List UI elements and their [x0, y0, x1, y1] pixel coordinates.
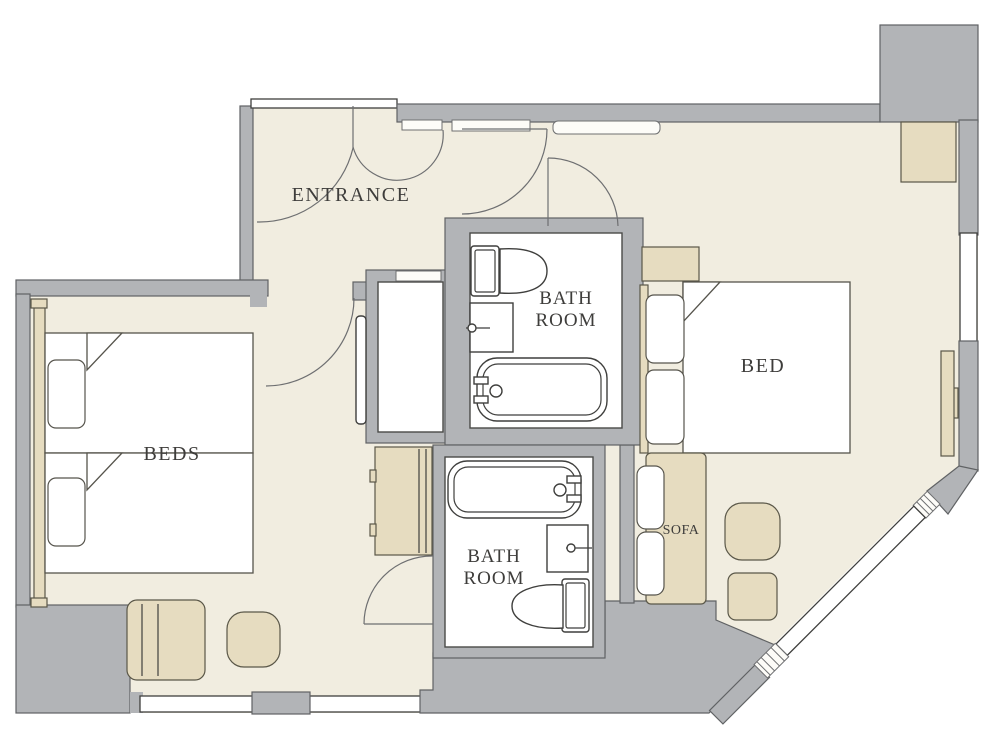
window-right [960, 233, 977, 343]
bathroom-bottom-label-line1: BATH [467, 546, 521, 567]
bathroom-bottom-label-line2: ROOM [463, 568, 524, 589]
headboard-strip [34, 302, 45, 606]
coffee-table-round [725, 503, 780, 560]
wall-top [397, 104, 880, 122]
bathroom-top: BATH ROOM [445, 218, 643, 445]
entrance-label: ENTRANCE [292, 184, 411, 206]
closet-top-recess [396, 271, 441, 281]
tv-board-panel [941, 351, 954, 456]
wall-right-upper [959, 120, 978, 235]
nightstand [642, 247, 699, 281]
wall-pillar [250, 294, 267, 307]
wall-sofa-back [620, 445, 634, 603]
closet-interior [378, 282, 443, 432]
armchair [127, 600, 205, 680]
sofa: SOFA [637, 453, 706, 604]
headboard-cap-bottom [31, 598, 47, 607]
sink-faucet [468, 324, 476, 332]
sofa-cushion [637, 466, 664, 529]
entrance-threshold [251, 99, 397, 108]
bathtub-faucet [554, 484, 566, 496]
wall-right-lower [959, 341, 978, 471]
sink [466, 303, 513, 352]
beds-room-label: BEDS [143, 443, 200, 465]
wall-left [16, 294, 30, 607]
side-table [227, 612, 280, 667]
closet [356, 270, 458, 443]
sink [547, 525, 592, 572]
bathtub-faucet [490, 385, 502, 397]
bathtub-tap-2 [474, 396, 488, 403]
floor-plan-canvas: BATH ROOM BATH ROOM [0, 0, 1000, 750]
wall-entry-left-column [240, 106, 253, 282]
armchair-body [127, 600, 205, 680]
ceiling-vent [553, 121, 660, 134]
cabinet-knob [370, 470, 376, 482]
bathtub [474, 358, 607, 421]
bathtub [448, 461, 581, 518]
headboard-cap-top [31, 299, 47, 308]
cabinet-knob [370, 524, 376, 536]
pillow [48, 360, 85, 428]
bathroom-top-label-line2: ROOM [535, 310, 596, 331]
bathtub-tap-1 [474, 377, 488, 384]
wall-bottom-left-block [16, 605, 130, 713]
bathtub-tap-2 [567, 495, 581, 502]
sofa-cushion [637, 532, 664, 595]
bathtub-tap-1 [567, 476, 581, 483]
floor-plan: BATH ROOM BATH ROOM [0, 0, 1000, 750]
wall-recess-1 [402, 120, 442, 130]
coffee-table-square [728, 573, 777, 620]
wall-bottom-pier [252, 692, 310, 714]
wall-top-right-block [880, 25, 978, 122]
wall-bedsroom-top [16, 280, 268, 296]
toilet [471, 246, 547, 296]
pillow [646, 370, 684, 444]
wardrobe-cabinet [370, 447, 432, 555]
bathroom-bottom: BATH ROOM [433, 445, 605, 658]
bed-room-label: BED [741, 355, 786, 377]
pillow [48, 478, 85, 546]
sofa-label: SOFA [663, 523, 700, 538]
mirror [356, 316, 366, 424]
bathroom-top-label-line1: BATH [539, 288, 593, 309]
sink-faucet [567, 544, 575, 552]
pillow [646, 295, 684, 363]
corner-closet [901, 122, 956, 182]
cabinet-body [375, 447, 432, 555]
